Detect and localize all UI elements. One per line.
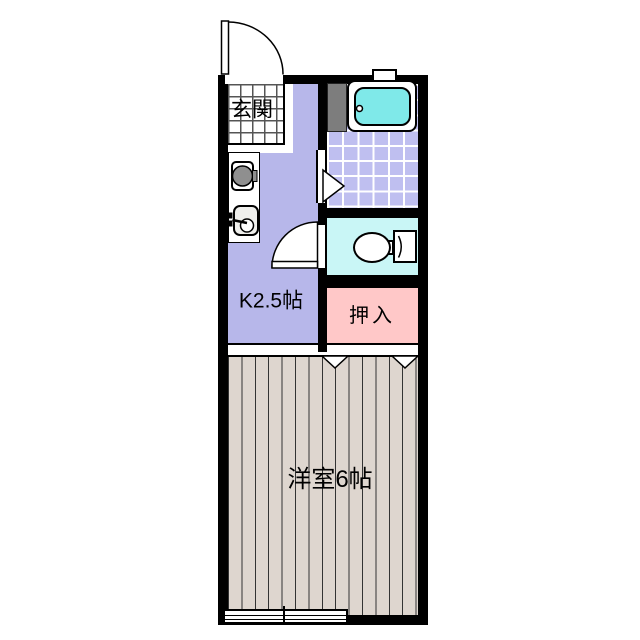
western-room-label: 洋室6帖 <box>287 468 372 492</box>
wall-kitchen-divider <box>318 84 327 352</box>
toilet-tank <box>393 230 417 263</box>
bathtub-inner <box>354 87 411 126</box>
kitchen-sink <box>233 205 259 236</box>
floor-plan: 玄関 K2.5帖 押入 洋室6帖 <box>0 0 640 640</box>
entrance-door-leaf <box>222 21 229 74</box>
kitchen-label: K2.5帖 <box>239 291 303 312</box>
wall-right <box>418 75 428 625</box>
wall-left <box>218 75 228 625</box>
entrance-door-arc <box>229 22 284 75</box>
toilet-bowl <box>353 232 391 263</box>
wall-bath-toilet <box>318 208 418 218</box>
bath-door-opening <box>316 150 327 203</box>
toilet-door-opening <box>316 225 327 268</box>
window-pane-line <box>225 619 346 621</box>
genkan-label: 玄関 <box>231 100 273 121</box>
washing-machine-panel <box>327 83 347 132</box>
main-window <box>223 609 348 624</box>
window-center-tick <box>283 606 285 625</box>
wall-toilet-closet <box>318 275 418 288</box>
entrance-opening <box>225 75 283 84</box>
closet-label: 押入 <box>349 306 395 326</box>
kitchen-stove <box>231 161 254 191</box>
window-pane-line <box>225 615 346 617</box>
